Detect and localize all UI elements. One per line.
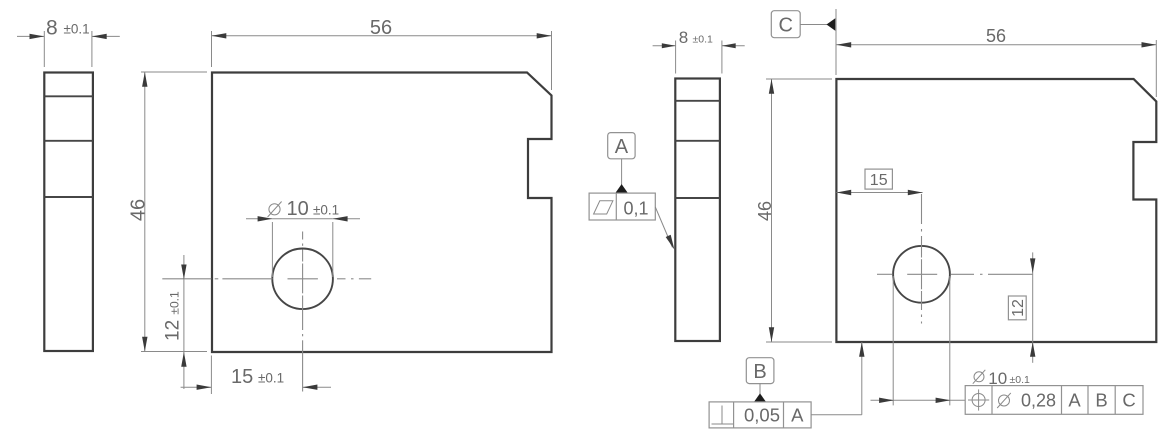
svg-text:±0.1: ±0.1 [64, 22, 90, 37]
svg-text:56: 56 [370, 17, 392, 39]
svg-text:A: A [1068, 390, 1081, 411]
svg-text:12: 12 [1010, 299, 1027, 317]
svg-text:10: 10 [287, 198, 309, 220]
svg-text:0,05: 0,05 [744, 405, 780, 426]
svg-text:B: B [1095, 390, 1107, 411]
svg-text:±0.1: ±0.1 [313, 203, 339, 218]
svg-text:0,28: 0,28 [1021, 391, 1056, 411]
svg-text:±0.1: ±0.1 [258, 371, 284, 386]
svg-text:8: 8 [46, 17, 58, 40]
svg-text:8: 8 [679, 28, 688, 47]
svg-text:56: 56 [986, 26, 1006, 46]
svg-text:A: A [615, 136, 629, 158]
svg-text:±0.1: ±0.1 [693, 34, 714, 46]
svg-text:15: 15 [870, 172, 888, 189]
svg-text:A: A [791, 405, 804, 426]
svg-text:B: B [753, 361, 766, 383]
svg-text:46: 46 [755, 201, 775, 221]
svg-text:C: C [1122, 390, 1135, 411]
svg-text:±0.1: ±0.1 [1010, 374, 1031, 386]
svg-text:0,1: 0,1 [623, 199, 648, 219]
svg-text:15: 15 [231, 366, 253, 388]
svg-text:46: 46 [128, 199, 150, 221]
svg-text:C: C [778, 15, 792, 37]
